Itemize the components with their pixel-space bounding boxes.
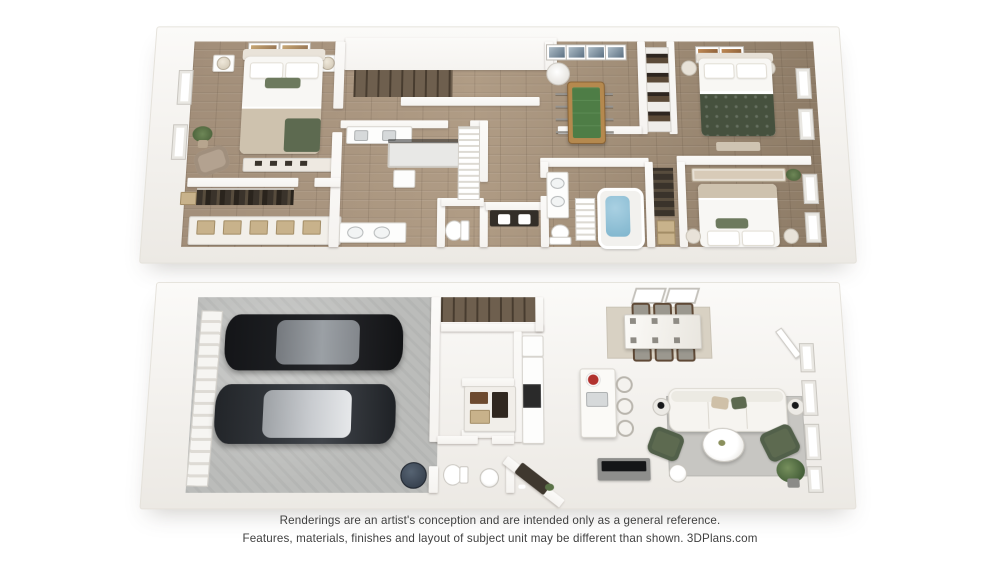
wall-segment	[677, 156, 812, 165]
window	[801, 380, 818, 416]
pillow	[736, 63, 767, 78]
duvet	[700, 91, 776, 136]
place-settings	[630, 337, 693, 343]
pedestal-table	[546, 62, 570, 85]
small-plant	[545, 484, 554, 491]
stairwell-ceiling	[344, 38, 557, 70]
storage-box	[657, 220, 676, 232]
sofa-pillow-green	[731, 396, 748, 410]
window	[802, 174, 819, 204]
wall-segment	[462, 378, 514, 386]
bed-primary	[237, 49, 325, 156]
toilet-tank	[549, 237, 572, 245]
nightstand	[685, 228, 701, 243]
dresser	[691, 168, 786, 182]
bed-3	[698, 184, 780, 247]
bench-items	[255, 161, 315, 166]
wall-segment	[492, 436, 514, 444]
dining-chair	[654, 347, 673, 362]
pillow	[249, 62, 283, 78]
wall-segment	[437, 436, 477, 444]
wall-art	[567, 45, 587, 59]
plant-pot	[787, 478, 800, 487]
wall-segment	[314, 178, 341, 187]
storage-box	[657, 233, 676, 245]
sofa-seam	[707, 402, 709, 429]
wall-art	[586, 45, 606, 59]
dining-chair	[676, 347, 695, 362]
bar-shelf	[645, 47, 672, 132]
pantry-items	[470, 392, 488, 404]
throw-blanket	[284, 118, 321, 151]
closet-hanging-clothes	[196, 190, 294, 205]
staircase	[353, 70, 452, 97]
blanket	[698, 184, 778, 200]
window	[177, 70, 194, 105]
skylight-window	[664, 288, 700, 304]
linen-shelf	[458, 126, 481, 200]
window	[798, 109, 815, 140]
disclaimer-line-2: Features, materials, finishes and layout…	[0, 530, 1000, 548]
bed-2	[696, 53, 778, 138]
linen-niche	[575, 198, 596, 241]
shoe-box	[302, 220, 321, 234]
shoe-box	[223, 220, 242, 234]
pantry-items	[492, 392, 508, 418]
disclaimer: Renderings are an artist's conception an…	[0, 512, 1000, 547]
wall-segment	[429, 297, 440, 442]
sink	[551, 196, 565, 207]
bar-stool	[616, 376, 633, 393]
car-1	[223, 314, 403, 370]
wall-art	[606, 45, 626, 59]
wall-segment	[429, 466, 439, 493]
shoes	[518, 485, 525, 489]
window	[807, 466, 824, 493]
side-table	[393, 170, 416, 188]
lower-floor-plan	[139, 282, 856, 509]
wall-segment	[187, 178, 298, 187]
wall-segment	[480, 120, 488, 181]
plant-pot	[198, 140, 208, 148]
window	[799, 343, 816, 372]
nightstand	[681, 60, 697, 75]
dining-chair	[633, 347, 652, 362]
shoe-box	[249, 220, 268, 234]
toilet-tank	[459, 466, 468, 483]
foot-bench	[716, 142, 760, 151]
bar-stool	[616, 398, 633, 415]
sink	[550, 178, 564, 189]
storage-box	[180, 192, 197, 205]
staircase	[441, 297, 536, 322]
wall-segment	[540, 158, 649, 167]
shoe-box	[196, 220, 215, 234]
car-2	[213, 384, 396, 444]
pillow	[707, 231, 740, 246]
small-round-table	[669, 464, 688, 482]
window	[804, 424, 822, 460]
table-lamp-black	[792, 402, 799, 409]
bath-water	[605, 196, 630, 237]
shower-glass	[388, 139, 460, 143]
pillow	[285, 62, 319, 78]
nightstand	[783, 228, 799, 243]
place-settings	[630, 318, 693, 324]
upper-floor-plan	[139, 26, 857, 263]
shoe-box	[276, 220, 295, 234]
vessel-sink	[518, 214, 530, 224]
shower	[387, 142, 460, 168]
sink	[354, 130, 368, 141]
bathtub	[597, 188, 645, 249]
wall-segment	[535, 297, 543, 331]
stove	[523, 384, 541, 408]
window	[804, 212, 821, 243]
foosball-table	[567, 82, 606, 144]
sofa-pillow-tan	[711, 396, 729, 410]
window	[795, 68, 812, 99]
pillow	[704, 63, 735, 78]
toilet-tank	[460, 220, 469, 240]
pantry-items	[470, 410, 490, 424]
skylight-window	[631, 288, 667, 304]
car-glass	[262, 390, 352, 438]
wall-segment	[486, 202, 543, 210]
plant	[786, 169, 802, 181]
window	[171, 124, 188, 160]
stair-railing-wall	[441, 324, 544, 332]
accent-pillow	[265, 78, 301, 89]
table-lamp-black	[657, 402, 664, 409]
wall-art	[547, 45, 567, 59]
vessel-sink	[498, 214, 510, 224]
sofa	[668, 388, 789, 432]
tv	[601, 461, 646, 471]
table-decor	[718, 440, 725, 446]
refrigerator	[522, 335, 544, 356]
food-plate	[586, 372, 601, 387]
closet-hanging-clothes	[653, 168, 675, 216]
pedestal-sink	[480, 468, 499, 487]
disclaimer-line-1: Renderings are an artist's conception an…	[0, 512, 1000, 530]
stair-railing-wall	[401, 97, 540, 106]
accent-pillow	[715, 218, 748, 228]
bar-stool	[617, 420, 635, 437]
pillow	[741, 231, 774, 246]
island-sink	[586, 392, 608, 407]
foosball-field	[572, 87, 601, 138]
car-glass	[275, 320, 360, 364]
